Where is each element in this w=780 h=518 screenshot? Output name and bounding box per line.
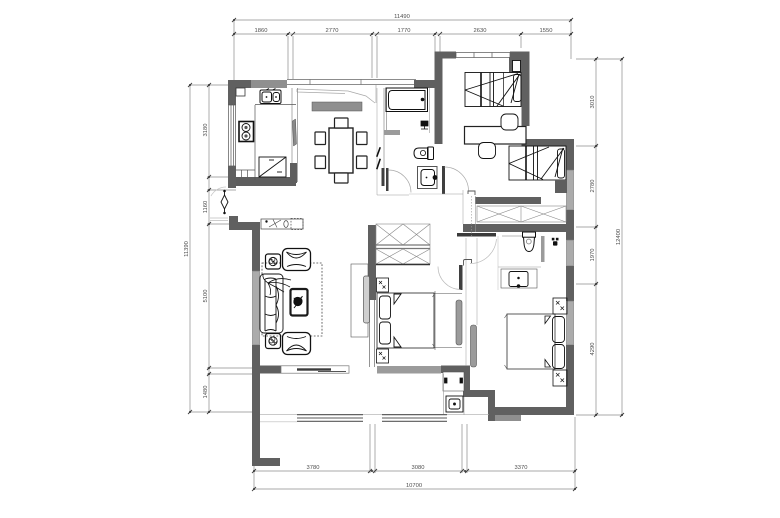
svg-text:1480: 1480 <box>203 386 209 399</box>
svg-text:1160: 1160 <box>203 201 209 213</box>
svg-text:1770: 1770 <box>398 28 411 34</box>
svg-text:3010: 3010 <box>590 96 596 109</box>
svg-text:2770: 2770 <box>326 28 339 34</box>
svg-text:3180: 3180 <box>203 124 209 137</box>
svg-text:3780: 3780 <box>307 465 320 471</box>
svg-text:4290: 4290 <box>590 343 596 356</box>
svg-text:1860: 1860 <box>255 28 268 34</box>
svg-text:3370: 3370 <box>515 465 528 471</box>
svg-text:12400: 12400 <box>616 229 622 245</box>
svg-text:10700: 10700 <box>406 483 422 489</box>
svg-text:5100: 5100 <box>203 290 209 303</box>
svg-text:1550: 1550 <box>540 28 553 34</box>
svg-text:11390: 11390 <box>184 241 190 257</box>
svg-text:2780: 2780 <box>590 180 596 193</box>
svg-text:1970: 1970 <box>590 249 596 262</box>
svg-text:2630: 2630 <box>474 28 487 34</box>
svg-text:11490: 11490 <box>394 14 410 20</box>
svg-text:3080: 3080 <box>412 465 425 471</box>
